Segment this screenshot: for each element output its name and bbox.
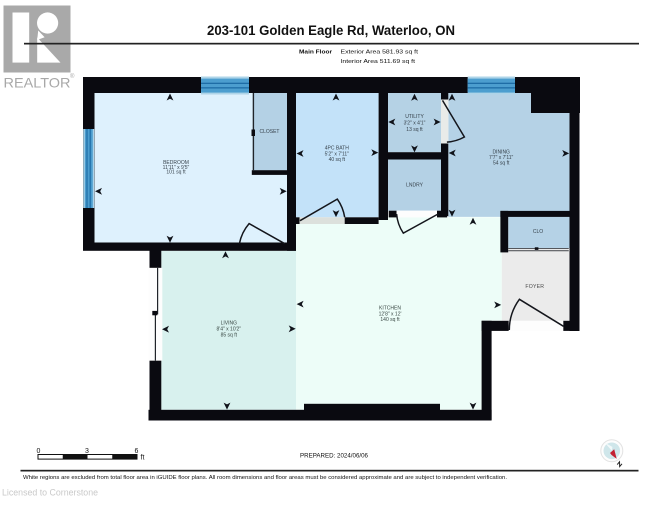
svg-text:White regions are excluded fro: White regions are excluded from total fl… bbox=[23, 475, 507, 481]
svg-text:203-101 Golden Eagle Rd, Water: 203-101 Golden Eagle Rd, Waterloo, ON bbox=[207, 23, 455, 38]
svg-text:6: 6 bbox=[135, 448, 139, 455]
svg-text:85 sq ft: 85 sq ft bbox=[221, 332, 238, 338]
svg-text:0: 0 bbox=[37, 448, 41, 455]
svg-text:REALTOR: REALTOR bbox=[4, 74, 71, 90]
svg-text:UTILITY: UTILITY bbox=[405, 114, 424, 120]
svg-text:140 sq ft: 140 sq ft bbox=[380, 317, 400, 323]
svg-text:Main Floor: Main Floor bbox=[299, 50, 333, 56]
svg-text:Interior Area 511.69 sq ft: Interior Area 511.69 sq ft bbox=[341, 59, 416, 65]
svg-text:101 sq ft: 101 sq ft bbox=[166, 170, 186, 176]
svg-text:3'2" x 4'1": 3'2" x 4'1" bbox=[404, 121, 426, 127]
svg-text:Exterior Area 581.93 sq ft: Exterior Area 581.93 sq ft bbox=[341, 50, 419, 56]
svg-text:13 sq ft: 13 sq ft bbox=[406, 127, 423, 133]
svg-text:PREPARED: 2024/06/06: PREPARED: 2024/06/06 bbox=[300, 453, 368, 460]
svg-text:3: 3 bbox=[85, 448, 89, 455]
svg-text:CLO: CLO bbox=[533, 229, 543, 235]
svg-text:LIVING: LIVING bbox=[221, 321, 238, 327]
svg-text:®: ® bbox=[70, 73, 75, 80]
svg-text:FOYER: FOYER bbox=[525, 284, 544, 290]
svg-text:40 sq ft: 40 sq ft bbox=[329, 157, 346, 163]
svg-text:KITCHEN: KITCHEN bbox=[379, 305, 401, 311]
svg-text:ft: ft bbox=[141, 455, 145, 462]
svg-text:LNDRY: LNDRY bbox=[406, 183, 424, 189]
svg-text:Licensed to Cornerstone: Licensed to Cornerstone bbox=[2, 488, 98, 498]
svg-text:CLOSET: CLOSET bbox=[259, 129, 279, 135]
svg-text:54 sq ft: 54 sq ft bbox=[493, 161, 510, 167]
